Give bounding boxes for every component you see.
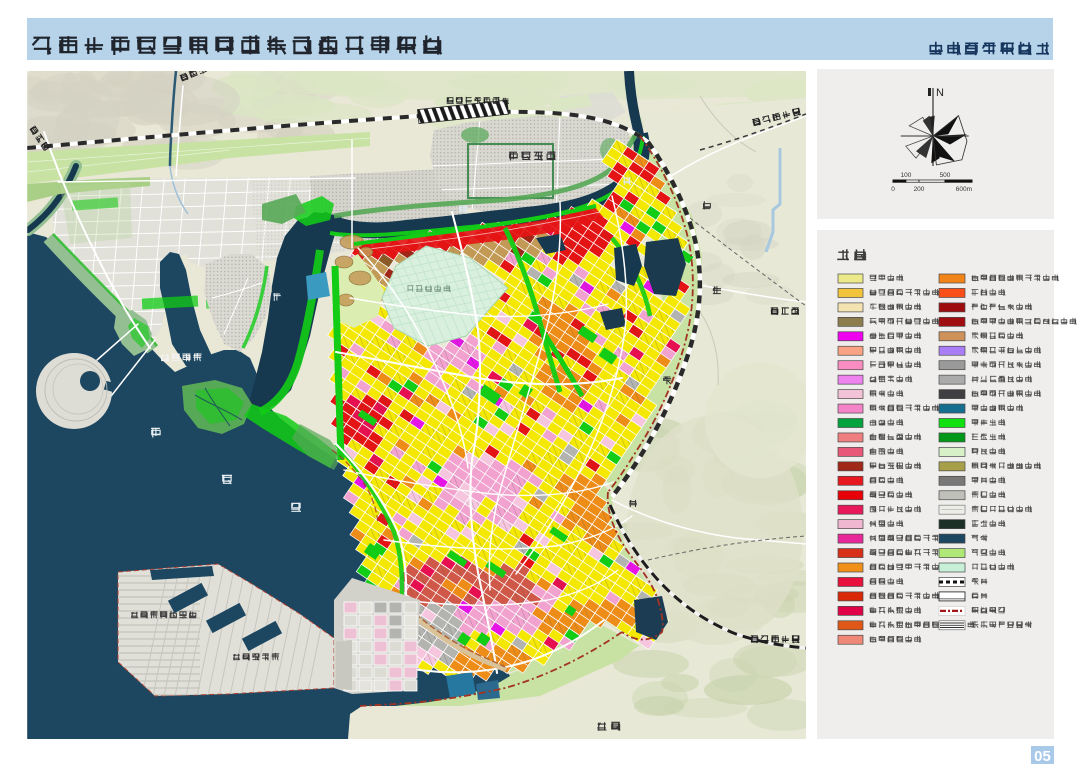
svg-text:05: 05 <box>1034 748 1051 764</box>
svg-text:100: 100 <box>901 172 912 179</box>
svg-text:500: 500 <box>940 172 951 179</box>
svg-text:200: 200 <box>914 186 925 193</box>
svg-text:600m: 600m <box>956 186 972 193</box>
svg-text:0: 0 <box>891 186 895 193</box>
svg-text:N: N <box>936 87 944 99</box>
